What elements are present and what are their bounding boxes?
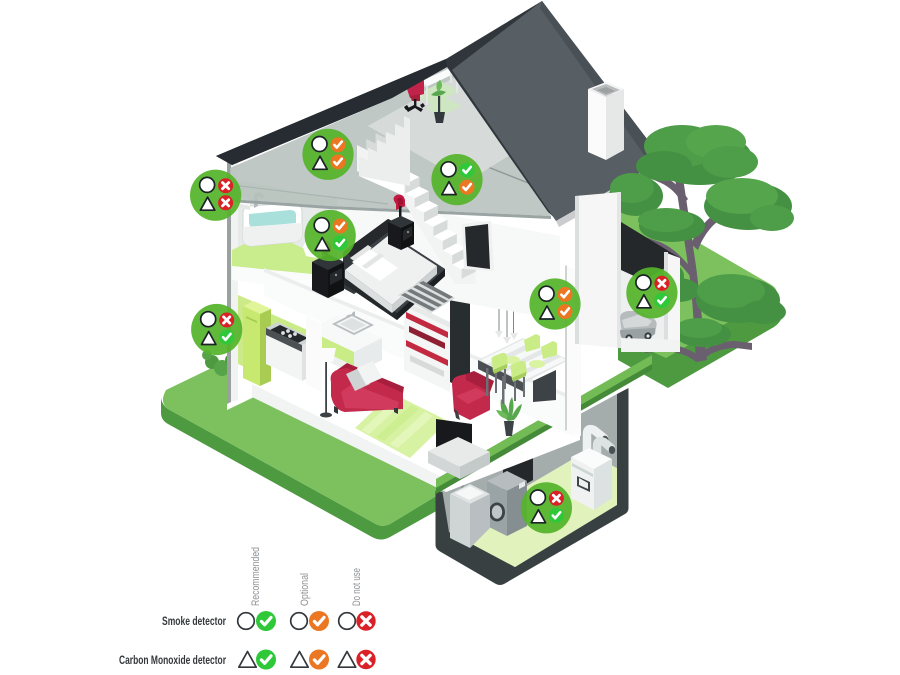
svg-text:Do not use: Do not use xyxy=(351,568,363,606)
svg-text:Smoke detector: Smoke detector xyxy=(162,616,226,628)
svg-text:Optional: Optional xyxy=(299,573,311,606)
svg-text:Carbon Monoxide detector: Carbon Monoxide detector xyxy=(119,655,226,667)
svg-text:Recommended: Recommended xyxy=(250,547,262,606)
